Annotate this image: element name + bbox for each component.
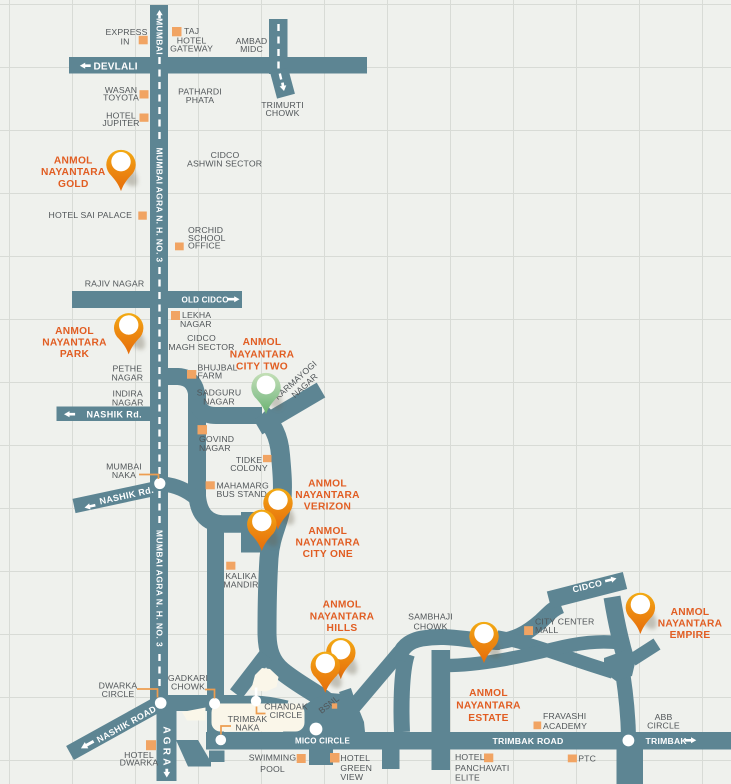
svg-text:NAYANTARA: NAYANTARA — [41, 167, 106, 178]
svg-text:MAGH SECTOR: MAGH SECTOR — [168, 342, 234, 352]
svg-text:NAYANTARA: NAYANTARA — [310, 611, 375, 622]
svg-text:GATEWAY: GATEWAY — [170, 44, 213, 54]
svg-text:EMPIRE: EMPIRE — [670, 630, 711, 641]
svg-text:NAKA: NAKA — [235, 723, 259, 733]
svg-text:BUS STAND: BUS STAND — [217, 489, 267, 499]
svg-text:ANMOL: ANMOL — [55, 326, 94, 337]
svg-text:MICO CIRCLE: MICO CIRCLE — [295, 736, 351, 745]
svg-text:ELITE: ELITE — [455, 773, 480, 783]
svg-text:NAKA: NAKA — [112, 470, 136, 480]
svg-text:EXPRESS: EXPRESS — [105, 27, 147, 37]
svg-text:ESTATE: ESTATE — [468, 713, 508, 724]
svg-text:MUMBAI AGRA N. H. NO. 3: MUMBAI AGRA N. H. NO. 3 — [155, 530, 165, 647]
svg-text:DWARKA: DWARKA — [120, 758, 159, 768]
svg-text:MANDIR: MANDIR — [223, 579, 258, 589]
svg-text:CHOWK: CHOWK — [265, 108, 299, 118]
svg-text:ANMOL: ANMOL — [323, 600, 362, 611]
svg-text:PTC: PTC — [578, 754, 596, 764]
svg-text:ANMOL: ANMOL — [671, 607, 710, 618]
svg-text:IN: IN — [121, 37, 130, 47]
svg-text:HILLS: HILLS — [327, 623, 358, 634]
svg-text:DEVLALI: DEVLALI — [94, 61, 138, 72]
svg-text:RAJIV NAGAR: RAJIV NAGAR — [85, 279, 145, 289]
svg-text:MIDC: MIDC — [240, 44, 263, 54]
svg-text:CIRCLE: CIRCLE — [102, 689, 135, 699]
svg-text:MUMBAI: MUMBAI — [155, 18, 165, 55]
svg-text:TRIMBAK: TRIMBAK — [646, 736, 688, 746]
svg-text:NAGAR: NAGAR — [180, 319, 212, 329]
svg-text:HOTEL: HOTEL — [455, 752, 485, 762]
svg-text:OLD CIDCO: OLD CIDCO — [182, 295, 229, 304]
svg-text:GOLD: GOLD — [58, 179, 89, 190]
svg-text:PANCHAVATI: PANCHAVATI — [455, 763, 509, 773]
svg-text:SAMBHAJI: SAMBHAJI — [408, 612, 453, 622]
svg-text:NAYANTARA: NAYANTARA — [42, 338, 107, 349]
svg-text:FRAVASHI: FRAVASHI — [543, 711, 586, 721]
svg-text:CITY ONE: CITY ONE — [303, 549, 353, 560]
svg-text:CIRCLE: CIRCLE — [647, 720, 680, 730]
svg-text:NAGAR: NAGAR — [203, 396, 235, 406]
svg-text:COLONY: COLONY — [230, 463, 268, 473]
svg-text:NAYANTARA: NAYANTARA — [295, 490, 360, 501]
svg-text:PHATA: PHATA — [186, 95, 214, 105]
svg-text:TOYOTA: TOYOTA — [103, 93, 139, 103]
svg-text:NAGAR: NAGAR — [199, 443, 231, 453]
svg-text:ANMOL: ANMOL — [469, 688, 508, 699]
svg-text:NAYANTARA: NAYANTARA — [456, 701, 521, 712]
svg-text:NAYANTARA: NAYANTARA — [658, 619, 723, 630]
svg-text:ANMOL: ANMOL — [243, 337, 282, 348]
svg-text:CHOWK: CHOWK — [413, 622, 447, 632]
svg-text:TAJ: TAJ — [184, 26, 199, 36]
svg-text:TRIMBAK ROAD: TRIMBAK ROAD — [493, 736, 564, 746]
svg-text:ANMOL: ANMOL — [308, 526, 347, 537]
svg-text:NAGAR: NAGAR — [112, 397, 144, 407]
svg-text:ANMOL: ANMOL — [308, 479, 347, 490]
svg-text:OFFICE: OFFICE — [188, 241, 221, 251]
svg-text:FARM: FARM — [198, 371, 223, 381]
svg-text:AGRA: AGRA — [160, 726, 171, 768]
svg-text:VIEW: VIEW — [340, 772, 363, 782]
svg-text:NASHIK Rd.: NASHIK Rd. — [87, 410, 143, 420]
svg-text:HOTEL: HOTEL — [340, 753, 370, 763]
svg-text:PARK: PARK — [60, 349, 90, 360]
svg-text:ACADEMY: ACADEMY — [543, 721, 587, 731]
svg-text:JUPITER: JUPITER — [102, 118, 139, 128]
svg-text:HOTEL SAI PALACE: HOTEL SAI PALACE — [49, 210, 133, 220]
svg-text:ANMOL: ANMOL — [54, 156, 93, 167]
svg-text:NAGAR: NAGAR — [111, 372, 143, 382]
svg-text:CITY TWO: CITY TWO — [236, 362, 288, 373]
svg-text:POOL: POOL — [260, 764, 285, 774]
svg-text:VERIZON: VERIZON — [304, 502, 351, 513]
svg-text:NAYANTARA: NAYANTARA — [296, 537, 361, 548]
svg-text:MALL: MALL — [535, 625, 558, 635]
svg-text:ASHWIN SECTOR: ASHWIN SECTOR — [187, 159, 262, 169]
svg-text:CIRCLE: CIRCLE — [270, 710, 303, 720]
svg-text:MUMBAI AGRA N. H. NO. 3: MUMBAI AGRA N. H. NO. 3 — [155, 148, 165, 263]
svg-text:CHOWK: CHOWK — [171, 681, 205, 691]
svg-text:SWIMMING: SWIMMING — [249, 753, 297, 763]
svg-text:NAYANTARA: NAYANTARA — [230, 349, 295, 360]
